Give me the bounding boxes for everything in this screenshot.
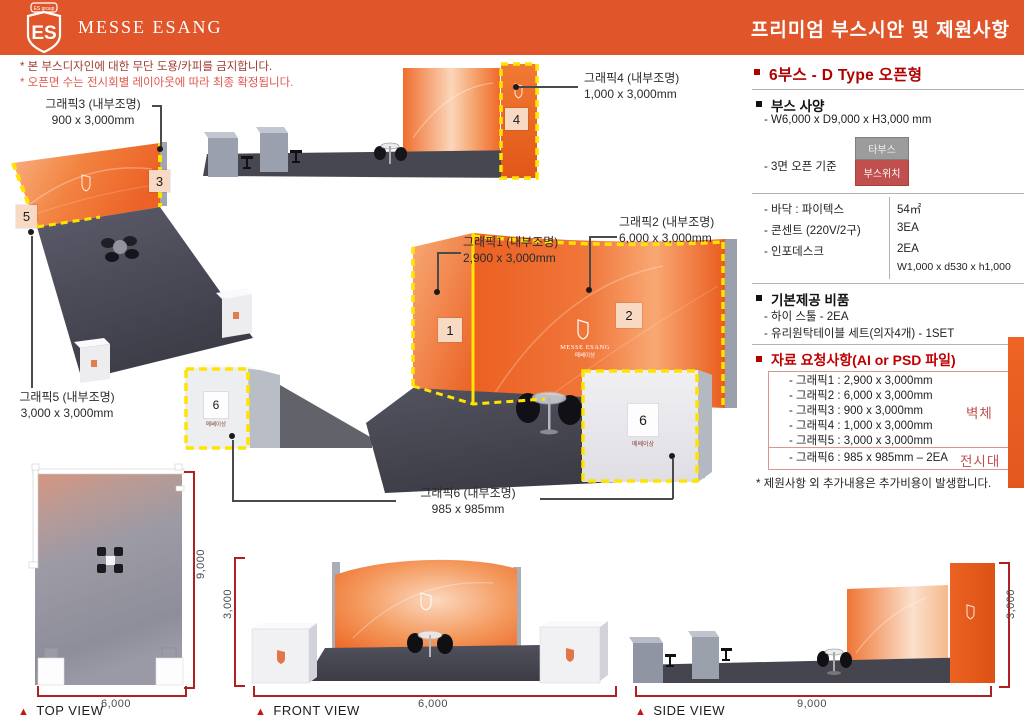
logo-letters: ES xyxy=(31,23,56,44)
slide-page: ES group ES MESSE ESANG 프리미엄 부스시안 및 제원사항… xyxy=(0,0,1024,724)
front-view-width-dim: 6,000 xyxy=(405,698,461,710)
request-item: - 그래픽1 : 2,900 x 3,000mm xyxy=(769,374,1019,389)
detail-value: 2EA xyxy=(897,243,919,255)
booth-spec-heading: 부스 사양 xyxy=(754,95,824,115)
detail-value: W1,000 x d530 x h1,000 xyxy=(897,261,1011,273)
top-view-depth-bracket xyxy=(184,471,195,689)
graphic5-label: 그래픽5 (내부조명)3,000 x 3,000mm xyxy=(8,389,126,421)
front-view-height-bracket xyxy=(234,557,245,687)
wall-tag: 벽체 xyxy=(966,402,993,422)
top-view-width-bracket xyxy=(37,686,187,697)
graphic4-label: 그래픽4 (내부조명)1,000 x 3,000mm xyxy=(584,70,679,102)
side-view-height-dim: 3,000 xyxy=(1005,581,1017,627)
graphic4-connector xyxy=(519,86,578,88)
top-view-depth-dim: 9,000 xyxy=(195,544,207,584)
column-divider xyxy=(889,197,890,279)
graphic1-connector xyxy=(437,252,439,292)
divider xyxy=(752,344,1024,345)
booth-position-cell: 부스위치 xyxy=(855,160,909,186)
booth-location-minimap: 타부스 부스위치 xyxy=(855,137,909,186)
detail-item: - 바닥 : 파이텍스 xyxy=(764,201,844,217)
other-booth-cell: 타부스 xyxy=(855,137,909,160)
graphic6-connector xyxy=(232,440,234,501)
messe-esang-shield-logo: ES group ES xyxy=(18,2,70,54)
front-view-height-dim: 3,000 xyxy=(222,581,234,627)
included-heading: 기본제공 비품 xyxy=(754,289,849,309)
detail-item: - 인포데스크 xyxy=(764,243,824,259)
wall1-badge: 1 xyxy=(438,318,462,342)
pedestal6-badge: 6 xyxy=(204,392,228,418)
graphic2-pointer-dot xyxy=(586,287,592,293)
wall5-badge: 5 xyxy=(16,205,37,228)
pedestal6-caption: 메쎄이상 xyxy=(198,420,234,428)
square-bullet-icon xyxy=(756,101,762,107)
page-title: 프리미엄 부스시안 및 제원사항 xyxy=(751,15,1010,42)
side-view-width-bracket xyxy=(635,686,992,697)
graphic5-connector xyxy=(31,236,33,388)
graphic6-connector xyxy=(232,500,396,502)
graphic6-connector xyxy=(672,459,674,499)
wall2-badge: 2 xyxy=(616,303,642,328)
detail-item: - 콘센트 (220V/2구) xyxy=(764,222,861,238)
divider xyxy=(752,193,1024,194)
red-square-bullet-icon xyxy=(754,69,760,75)
graphic2-connector xyxy=(589,236,591,290)
stand6-badge: 6 xyxy=(628,404,658,436)
graphic1-label: 그래픽1 (내부조명)2,900 x 3,000mm xyxy=(463,234,558,266)
header-bar: ES group ES MESSE ESANG 프리미엄 부스시안 및 제원사항 xyxy=(0,0,1024,55)
graphic2-label: 그래픽2 (내부조명)6,000 x 3,000mm xyxy=(619,214,714,246)
stand-tag: 전시대 xyxy=(960,450,1000,470)
side-view-caption: ▲SIDE VIEW xyxy=(635,703,725,718)
side-view-width-dim: 9,000 xyxy=(782,698,842,710)
graphic6-pointer-dot-right xyxy=(669,453,675,459)
graphic6-connector xyxy=(540,498,673,500)
graphic1-pointer-dot xyxy=(434,289,440,295)
front-view-drawing xyxy=(243,553,623,685)
page-edge-accent xyxy=(1008,337,1024,488)
top-view-drawing xyxy=(28,462,188,694)
divider xyxy=(752,283,1024,284)
brand-name: MESSE ESANG xyxy=(78,17,223,38)
booth-dimensions: - W6,000 x D9,000 x H3,000 mm xyxy=(764,114,931,126)
divider xyxy=(752,89,1024,90)
front-view-width-bracket xyxy=(253,686,617,697)
side-view-drawing xyxy=(626,553,1008,685)
graphic2-connector xyxy=(589,236,617,238)
graphic1-connector xyxy=(437,252,461,254)
upper-elevation-drawing xyxy=(198,58,540,183)
included-item: - 유리원탁테이블 세트(의자4개) - 1SET xyxy=(764,325,954,341)
graphic3-pointer-dot xyxy=(157,146,163,152)
triangle-marker-icon: ▲ xyxy=(255,706,266,718)
detail-value: 3EA xyxy=(897,222,919,234)
graphic6-label: 그래픽6 (내부조명)985 x 985mm xyxy=(398,485,538,517)
graphic6-pointer-dot-left xyxy=(229,433,235,439)
wall4-badge: 4 xyxy=(505,108,528,130)
wall3-badge: 3 xyxy=(149,170,170,192)
extra-cost-footnote: * 제원사항 외 추가내용은 추가비용이 발생합니다. xyxy=(756,475,991,491)
graphic5-pointer-dot xyxy=(28,229,34,235)
triangle-marker-icon: ▲ xyxy=(635,706,646,718)
graphic3-label: 그래픽3 (내부조명)900 x 3,000mm xyxy=(28,96,158,128)
wall-logo-text: MESSE ESANG 메쎄이상 xyxy=(552,344,618,359)
detail-value: 54㎡ xyxy=(897,201,921,217)
triangle-marker-icon: ▲ xyxy=(18,706,29,718)
spec-title: 6부스 - D Type 오픈형 xyxy=(752,63,1024,85)
stand6-caption: 메쎄이상 xyxy=(620,439,666,448)
main-perspective-drawing xyxy=(363,226,763,498)
request-heading: 자료 요청사항(AI or PSD 파일) xyxy=(754,350,956,370)
open-basis: - 3면 오픈 기준 xyxy=(764,158,837,174)
front-view-caption: ▲FRONT VIEW xyxy=(255,703,360,718)
top-view-caption: ▲TOP VIEW xyxy=(18,703,103,718)
red-square-bullet-icon xyxy=(756,356,762,362)
square-bullet-icon xyxy=(756,295,762,301)
graphic3-connector xyxy=(160,105,162,149)
included-item: - 하이 스툴 - 2EA xyxy=(764,308,849,324)
